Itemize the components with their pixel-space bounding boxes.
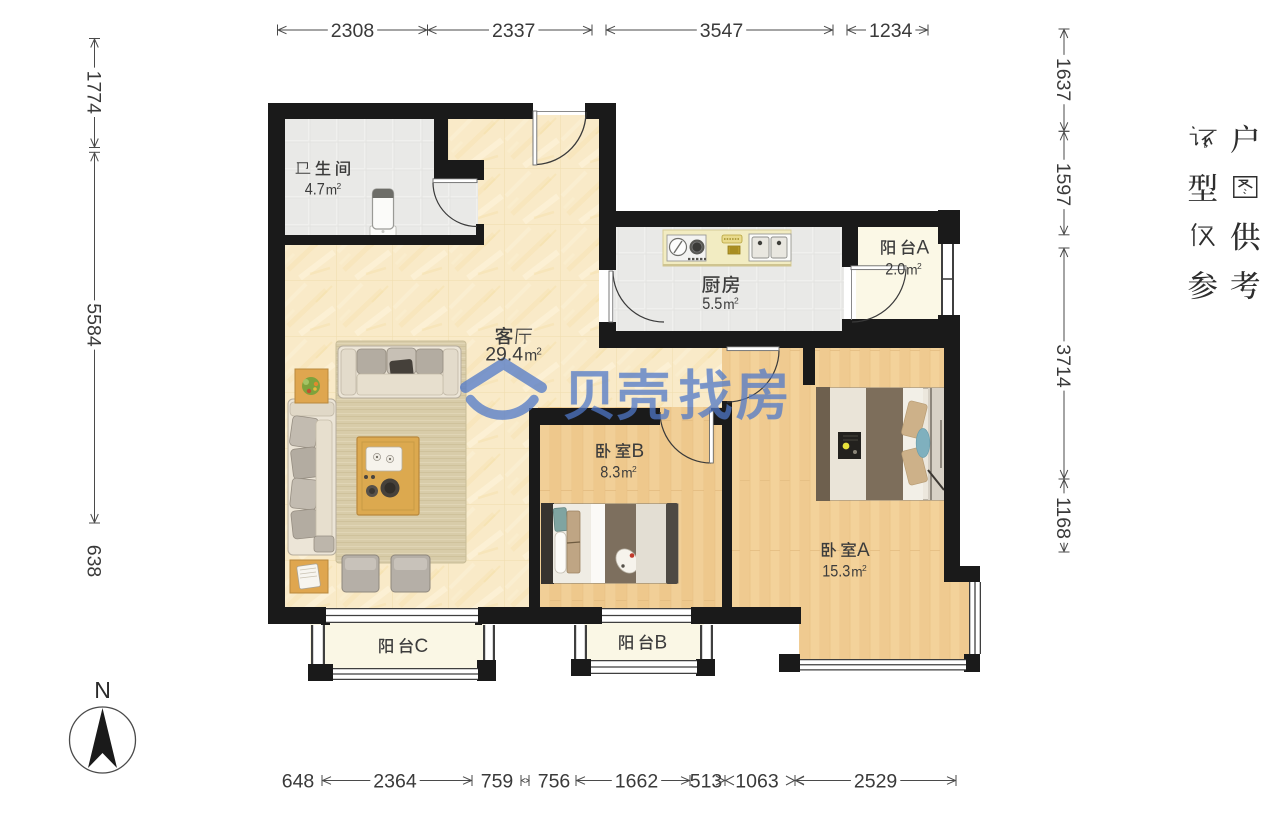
svg-text:29.4: 29.4 (485, 344, 523, 366)
svg-text:759: 759 (481, 771, 514, 793)
svg-text:m: m (621, 466, 632, 481)
svg-text:B: B (632, 441, 645, 462)
svg-text:3714: 3714 (1052, 344, 1074, 388)
svg-text:2308: 2308 (331, 20, 374, 42)
svg-text:2: 2 (337, 181, 342, 191)
svg-text:648: 648 (282, 771, 315, 793)
svg-text:1063: 1063 (735, 771, 778, 793)
svg-text:N: N (94, 677, 111, 703)
svg-text:15.3: 15.3 (822, 562, 850, 581)
svg-text:B: B (655, 633, 668, 654)
svg-text:1774: 1774 (83, 71, 105, 115)
svg-text:1168: 1168 (1052, 497, 1074, 539)
svg-text:5584: 5584 (83, 303, 105, 347)
svg-text:5.5: 5.5 (702, 294, 722, 313)
svg-text:2364: 2364 (373, 771, 417, 793)
svg-text:513: 513 (690, 771, 723, 793)
svg-text:1637: 1637 (1052, 58, 1074, 101)
svg-text:1597: 1597 (1052, 163, 1074, 206)
svg-text:756: 756 (538, 771, 571, 793)
svg-text:4.7: 4.7 (305, 180, 325, 199)
svg-text:m: m (723, 297, 734, 312)
svg-text:2: 2 (862, 563, 867, 573)
svg-text:1662: 1662 (615, 771, 658, 793)
svg-text:m: m (851, 565, 862, 580)
svg-text:m: m (906, 263, 917, 278)
svg-text:2: 2 (734, 296, 739, 306)
svg-text:2: 2 (632, 464, 637, 474)
svg-text:638: 638 (83, 545, 105, 578)
svg-text:1234: 1234 (869, 20, 913, 42)
svg-text:A: A (857, 540, 870, 561)
svg-text:2529: 2529 (854, 771, 897, 793)
svg-text:2.0: 2.0 (885, 260, 905, 279)
svg-text:2: 2 (917, 261, 922, 271)
svg-text:m: m (524, 348, 537, 365)
svg-text:A: A (917, 238, 930, 259)
svg-text:8.3: 8.3 (600, 463, 620, 482)
svg-text:C: C (415, 636, 429, 657)
svg-text:m: m (326, 183, 337, 198)
svg-text:2337: 2337 (492, 20, 535, 42)
svg-text:2: 2 (536, 346, 541, 357)
svg-text:3547: 3547 (700, 20, 743, 42)
